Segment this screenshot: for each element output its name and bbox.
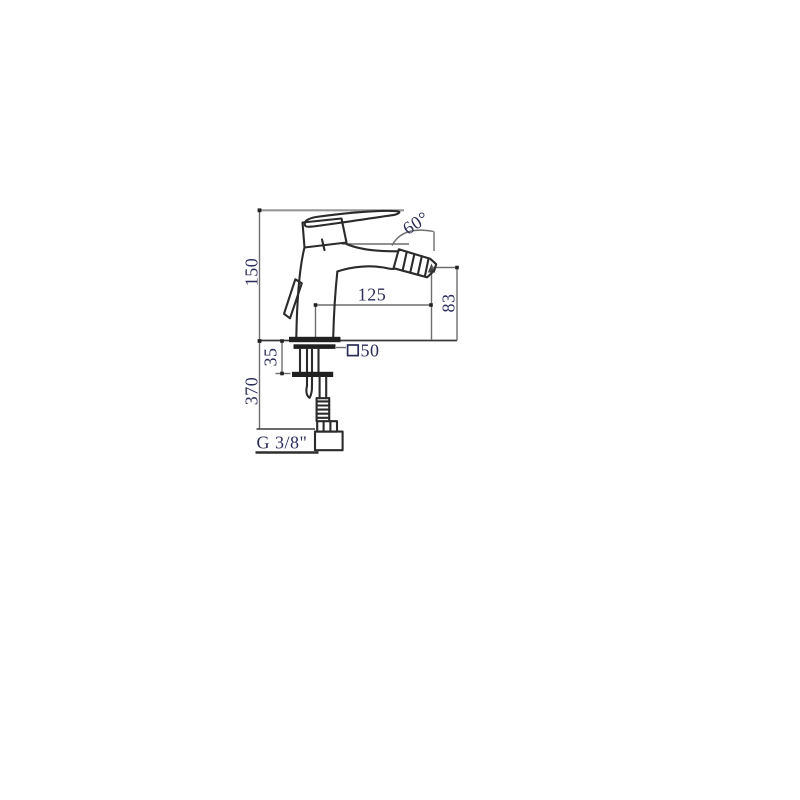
faucet-lever <box>305 211 400 227</box>
base-flange <box>289 337 341 342</box>
mounting-shank <box>300 349 319 372</box>
dim-label-reach-125: 125 <box>358 285 387 305</box>
dimension-lines <box>256 208 459 452</box>
dim-label-outlet-83: 83 <box>439 294 459 313</box>
braided-hose <box>317 398 330 421</box>
dim-label-thread-g38: G 3/8" <box>257 433 308 453</box>
square-symbol-icon <box>348 345 359 356</box>
dim-label-base-50: 50 <box>361 341 380 361</box>
technical-drawing: 150 370 35 125 83 60° 50 G 3/8" <box>0 0 800 800</box>
connector-block <box>315 432 343 451</box>
mounting-nut-plate <box>292 372 333 377</box>
body-left-edge <box>296 248 304 338</box>
base-gasket <box>294 344 336 349</box>
dim-label-deck-35: 35 <box>261 348 281 367</box>
spout-top-edge <box>347 244 399 251</box>
supply-hose <box>320 377 327 398</box>
dim-label-height-150: 150 <box>242 258 262 287</box>
hose-nut-facets <box>324 421 331 431</box>
hose-nut <box>317 421 337 431</box>
faucet-sketch <box>284 211 436 450</box>
dim-label-below-deck-370: 370 <box>242 377 262 406</box>
spout-bottom-edge <box>337 266 394 271</box>
drawing-canvas: 150 370 35 125 83 60° 50 G 3/8" <box>0 0 800 800</box>
cap-tick <box>322 240 325 251</box>
